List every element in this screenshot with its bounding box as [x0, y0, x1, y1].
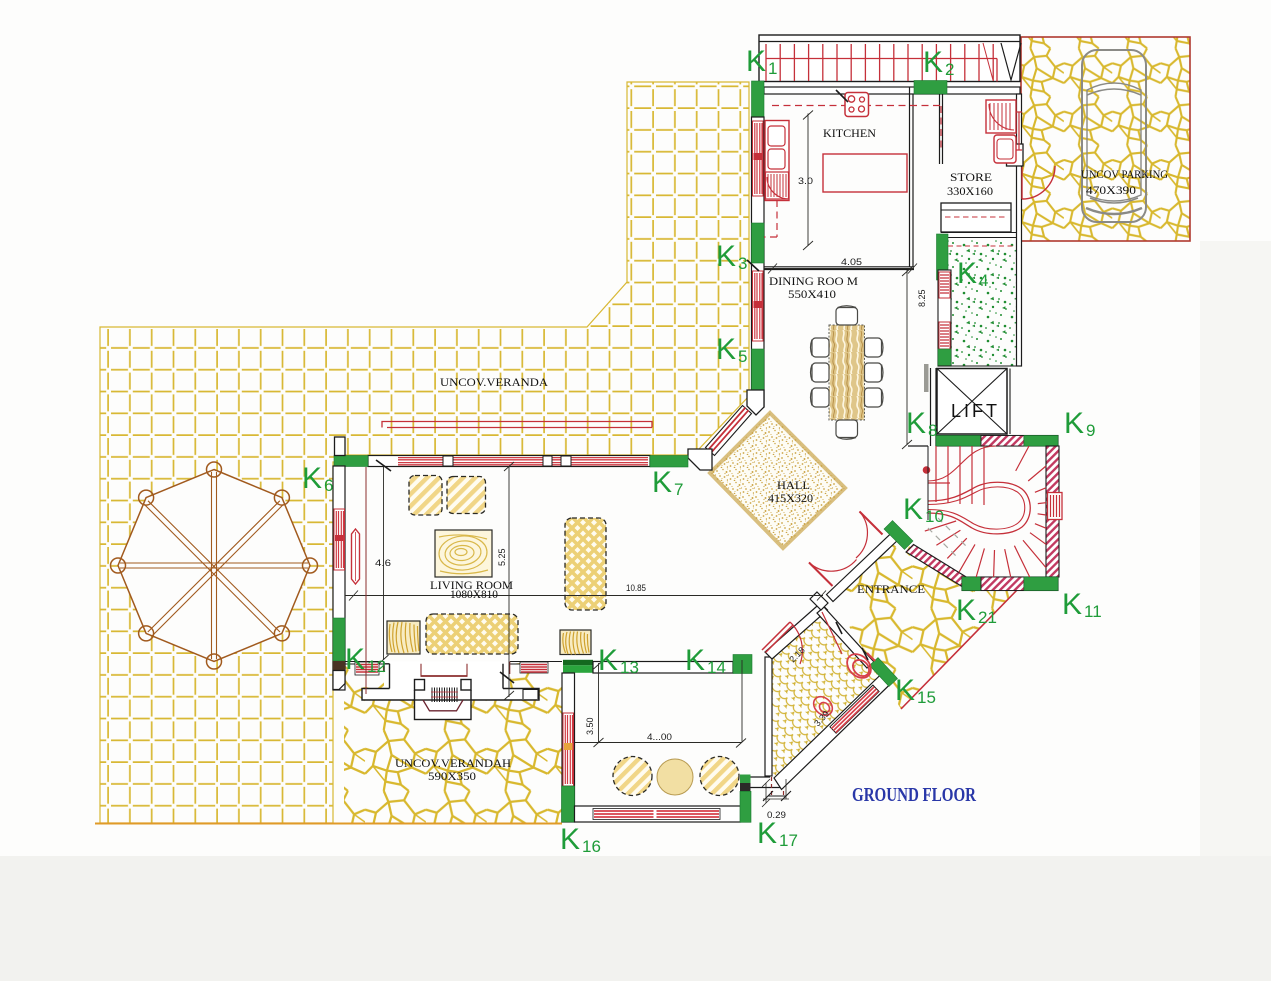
svg-text:590X350: 590X350	[428, 769, 476, 783]
svg-text:15: 15	[917, 688, 936, 707]
svg-text:4: 4	[979, 271, 988, 290]
svg-text:K: K	[716, 240, 736, 273]
svg-text:16: 16	[582, 837, 601, 856]
svg-text:470X390: 470X390	[1086, 183, 1136, 197]
svg-text:LIFT: LIFT	[951, 401, 997, 421]
svg-text:KITCHEN: KITCHEN	[823, 126, 876, 140]
svg-text:DINING ROO M: DINING ROO M	[769, 274, 858, 288]
svg-text:2: 2	[945, 60, 954, 79]
svg-text:K: K	[923, 46, 943, 79]
svg-text:17: 17	[779, 831, 798, 850]
svg-text:GROUND FLOOR: GROUND FLOOR	[852, 784, 976, 806]
svg-text:UNCOV.VERANDAH: UNCOV.VERANDAH	[395, 756, 511, 770]
svg-text:330X160: 330X160	[947, 184, 993, 198]
svg-text:ENTRANCE: ENTRANCE	[857, 582, 925, 596]
svg-text:K: K	[957, 257, 977, 290]
svg-text:8.25: 8.25	[917, 289, 927, 307]
svg-text:6: 6	[324, 476, 333, 495]
svg-text:K: K	[685, 644, 705, 677]
svg-text:K: K	[652, 466, 672, 499]
svg-text:3.50: 3.50	[585, 717, 595, 735]
svg-text:K: K	[746, 45, 766, 78]
svg-text:UNCOV PARKING: UNCOV PARKING	[1081, 167, 1168, 181]
svg-text:HALL: HALL	[777, 478, 810, 492]
svg-text:21: 21	[978, 608, 997, 627]
svg-text:9: 9	[1086, 421, 1095, 440]
svg-text:10: 10	[925, 507, 944, 526]
svg-text:12: 12	[367, 657, 386, 676]
svg-text:K: K	[1062, 588, 1082, 621]
svg-text:550X410: 550X410	[788, 287, 836, 301]
svg-text:14: 14	[707, 658, 726, 677]
svg-text:K: K	[716, 333, 736, 366]
svg-text:K: K	[1064, 407, 1084, 440]
svg-text:10.85: 10.85	[626, 583, 646, 593]
svg-text:1080X810: 1080X810	[450, 587, 498, 601]
svg-text:1: 1	[768, 59, 777, 78]
svg-text:K: K	[895, 674, 915, 707]
svg-text:4.05: 4.05	[841, 257, 862, 267]
svg-text:K: K	[345, 643, 365, 676]
svg-text:K: K	[906, 407, 926, 440]
svg-text:K: K	[560, 823, 580, 856]
svg-text:K: K	[956, 594, 976, 627]
svg-text:K: K	[598, 644, 618, 677]
svg-text:4.6: 4.6	[375, 558, 391, 568]
svg-text:UNCOV.VERANDA: UNCOV.VERANDA	[440, 375, 548, 389]
svg-text:K: K	[757, 817, 777, 850]
svg-text:13: 13	[620, 658, 639, 677]
svg-text:8: 8	[928, 421, 937, 440]
svg-text:3: 3	[738, 254, 747, 273]
svg-text:11: 11	[1084, 602, 1102, 621]
svg-text:K: K	[903, 493, 923, 526]
svg-text:7: 7	[674, 480, 683, 499]
svg-text:5: 5	[738, 347, 747, 366]
svg-text:415X320: 415X320	[768, 491, 813, 505]
svg-text:3.0: 3.0	[798, 176, 813, 186]
svg-text:K: K	[302, 462, 322, 495]
svg-text:4...00: 4...00	[647, 732, 672, 742]
svg-text:5.25: 5.25	[497, 548, 507, 566]
svg-text:STORE: STORE	[950, 170, 992, 184]
